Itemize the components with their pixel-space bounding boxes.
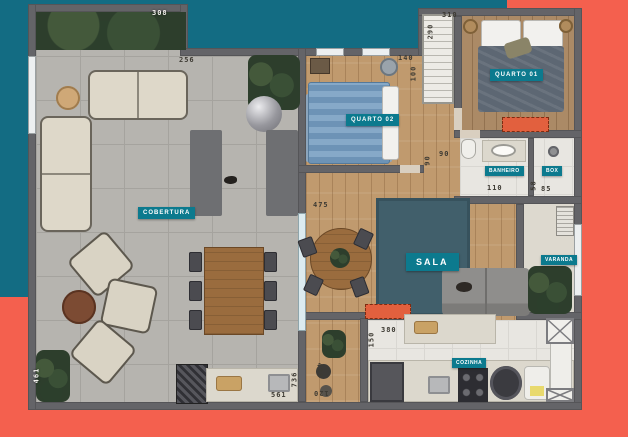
varanda-plant: [528, 266, 572, 314]
dining-table-terrace: [204, 247, 264, 335]
floorplan-scene: 308 256 310 290 140 100 90 90 110 85 58 …: [0, 0, 628, 437]
kitchen-island-board: [414, 321, 438, 334]
varanda-ac-unit: [556, 206, 574, 236]
kitchen-round-cooktop: [490, 366, 522, 400]
quarto02-door: [400, 165, 420, 173]
quarto01-nightstand-left: [463, 19, 478, 34]
room-label-quarto02: QUARTO 02: [346, 114, 399, 126]
terrace-coffee-table: [62, 290, 96, 324]
dining-chair-1: [189, 252, 202, 272]
terrace-side-table: [56, 86, 80, 110]
wall-cozinha-left: [360, 318, 368, 402]
room-label-cozinha: COZINHA: [452, 358, 486, 368]
dim-terrace-left: 461: [33, 368, 40, 384]
shaft-x-icon: [546, 318, 574, 344]
quarto01-highlight-bench: [502, 117, 549, 132]
quarto02-pillow-2: [382, 124, 399, 160]
sala-terrace-sliding-door: [298, 213, 306, 331]
dim-cozinha-side: 150: [368, 332, 375, 348]
room-label-quarto01: QUARTO 01: [490, 69, 543, 81]
dim-sala-side: 425: [315, 363, 322, 379]
dim-hall-width: 90: [439, 151, 449, 158]
sala-floor-plant: [322, 330, 346, 358]
dim-box-width: 85: [541, 186, 551, 193]
dim-terrace-bottom: 561: [271, 392, 287, 399]
dim-quarto02-side: 100: [410, 66, 417, 82]
room-label-cobertura: COBERTURA: [138, 207, 195, 219]
dim-terrace-top-right: 256: [179, 57, 195, 64]
bird: [224, 176, 237, 184]
dim-sala-top: 475: [313, 202, 329, 209]
quarto01-door: [454, 108, 462, 130]
banheiro-sink: [491, 144, 516, 157]
barbecue-grill: [176, 364, 208, 404]
kitchen-dark-cabinet: [370, 362, 404, 402]
exercise-mat-right: [266, 130, 298, 216]
shaft-x-icon: [546, 388, 574, 402]
dining-chair-5: [264, 281, 277, 301]
wall-right: [574, 8, 582, 410]
dim-hall-depth: 90: [425, 155, 432, 165]
sala-sofa: [442, 268, 530, 316]
quarto02-top-window-2: [362, 48, 390, 56]
room-label-banheiro: BANHEIRO: [485, 166, 524, 176]
dim-terrace-top: 308: [152, 10, 168, 17]
dim-banheiro: 110: [487, 185, 503, 192]
terrace-counter-sink: [268, 374, 290, 392]
quarto01-nightstand-right: [559, 19, 573, 33]
dining-chair-3: [189, 310, 202, 330]
wall-banheiro-bottom: [454, 196, 582, 204]
exercise-mat-left: [190, 130, 222, 216]
terrace-plant-bottom-left: [36, 350, 70, 402]
room-label-sala: SALA: [406, 253, 459, 271]
shaft-top: [546, 318, 574, 344]
dim-terrace-right: 736: [291, 372, 298, 388]
sala-table-plant: [330, 248, 350, 268]
dining-chair-2: [189, 281, 202, 301]
box-shower-drain: [548, 146, 559, 157]
terrace-sofa-left: [40, 116, 92, 232]
dim-box-depth: 58: [531, 180, 538, 190]
dim-cozinha-top: 380: [381, 327, 397, 334]
shaft-bottom: [546, 388, 574, 402]
dim-door-120: 120: [313, 389, 329, 396]
cat-on-sofa: [456, 282, 472, 292]
terrace-sofa-top: [88, 70, 188, 120]
room-label-varanda: VARANDA: [541, 255, 577, 265]
terrace-silver-sphere: [246, 96, 282, 132]
quarto02-top-window-1: [316, 48, 344, 56]
kitchen-stove: [458, 368, 488, 402]
banheiro-door: [460, 130, 480, 138]
kitchen-sink: [428, 376, 450, 394]
dim-closet-width: 310: [442, 12, 458, 19]
dining-chair-6: [264, 310, 277, 330]
dining-chair-4: [264, 252, 277, 272]
quarto02-basket: [380, 58, 398, 76]
banheiro-toilet: [461, 139, 476, 159]
dim-closet-height: 290: [427, 24, 434, 40]
wall-bottom: [28, 402, 582, 410]
terrace-left-window: [28, 56, 36, 134]
quarto02-nightstand: [310, 58, 330, 74]
background-notch: [188, 0, 418, 48]
room-label-box: BOX: [542, 166, 562, 176]
dim-quarto02-window: 140: [398, 55, 414, 62]
kitchen-washer-detail: [530, 386, 544, 396]
planter-hedge: [36, 12, 186, 50]
cutting-board: [216, 376, 242, 391]
